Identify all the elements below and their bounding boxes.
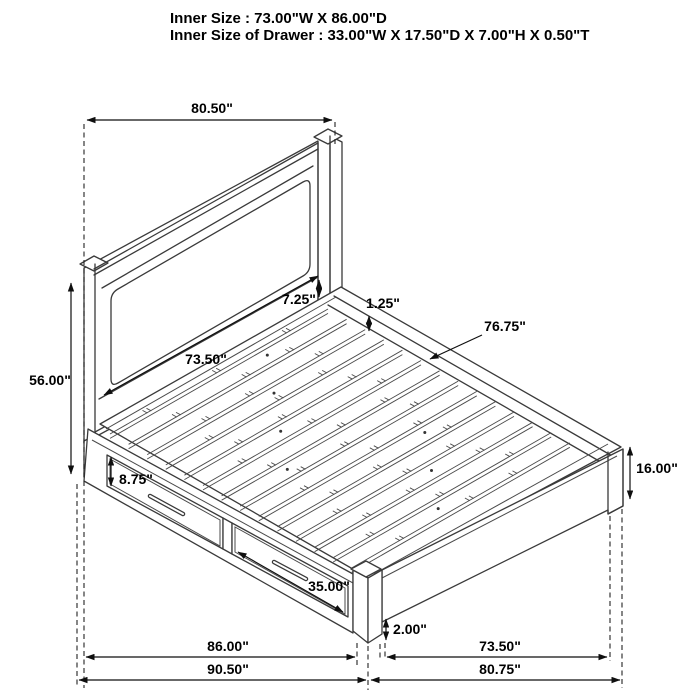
dim-overall-depth: 90.50" — [79, 661, 366, 680]
inner-size-note: Inner Size : 73.00"W X 86.00"D — [170, 10, 387, 27]
dim-headboard-width-label: 80.50" — [191, 100, 233, 116]
dim-headboard-width: 80.50" — [87, 100, 332, 120]
dim-overall-width: 80.75" — [371, 661, 620, 680]
dim-panel-width-label: 73.50" — [185, 351, 227, 367]
dim-slat-length-label: 76.75" — [484, 318, 526, 334]
dim-slat-length: 76.75" — [430, 318, 526, 359]
corner-post-left-face — [353, 570, 368, 643]
inner-drawer-size-note: Inner Size of Drawer : 33.00"W X 17.50"D… — [170, 27, 589, 44]
dim-overall-width-label: 80.75" — [479, 661, 521, 677]
extension-lines-center — [357, 643, 385, 690]
dim-footboard-height: 16.00" — [630, 447, 678, 499]
dim-foot-inner-width: 73.50" — [387, 638, 607, 657]
dim-side-inner-depth: 86.00" — [86, 638, 355, 657]
dim-footboard-height-label: 16.00" — [636, 460, 678, 476]
bed-dimension-diagram: 80.50" 56.00" 73.50" 7.25" 1.25" 76.75" … — [0, 0, 700, 700]
dim-overall-depth-label: 90.50" — [207, 661, 249, 677]
dim-panel-gap-label: 7.25" — [282, 291, 316, 307]
extension-lines-right — [610, 509, 622, 688]
dim-drawer-height-label: 8.75" — [119, 471, 153, 487]
dim-base-clearance: 2.00" — [386, 619, 427, 640]
dim-drawer-width-label: 35.00" — [308, 578, 350, 594]
dim-headboard-height: 56.00" — [29, 283, 71, 474]
diagram-svg: 80.50" 56.00" 73.50" 7.25" 1.25" 76.75" … — [0, 0, 700, 700]
dim-foot-inner-width-label: 73.50" — [479, 638, 521, 654]
dim-side-inner-depth-label: 86.00" — [207, 638, 249, 654]
headboard-right-post-side — [330, 136, 342, 304]
dim-base-clearance-label: 2.00" — [393, 621, 427, 637]
dim-slat-recess-label: 1.25" — [366, 295, 400, 311]
drawer-divider — [223, 518, 232, 554]
dim-headboard-height-label: 56.00" — [29, 372, 71, 388]
title-block: Inner Size : 73.00"W X 86.00"D Inner Siz… — [170, 10, 589, 44]
corner-post-right-face — [368, 570, 382, 643]
